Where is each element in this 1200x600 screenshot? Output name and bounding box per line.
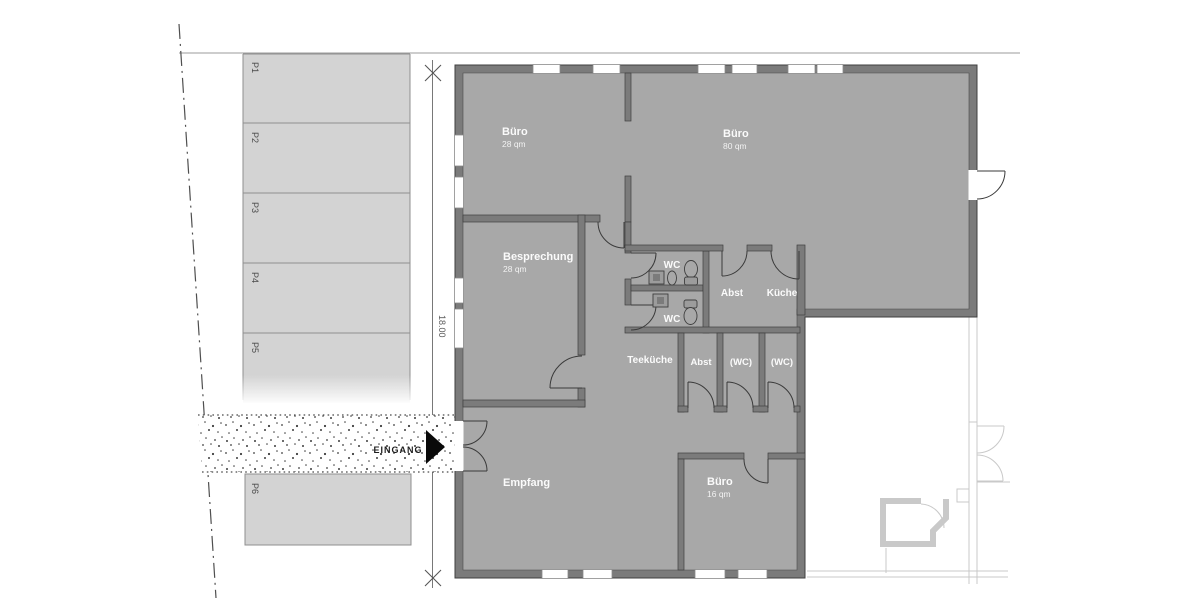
side-door-opening (969, 170, 978, 200)
label-abst-hall: Abst (690, 357, 712, 368)
label-buero-28-area: 28 qm (502, 139, 526, 149)
parking-label-p1: P1 (250, 62, 260, 73)
entrance-opening (455, 421, 464, 471)
entrance-walkway: EINGANG (198, 415, 458, 472)
parking-label-p5: P5 (250, 342, 260, 353)
label-buero-16: Büro (707, 476, 733, 488)
label-besprechung: Besprechung (503, 251, 573, 263)
label-wc-lower: WC (664, 314, 681, 325)
label-kueche: Küche (767, 288, 798, 299)
label-wc-hall-left: (WC) (730, 357, 752, 368)
neighbor-building-outline (807, 317, 1010, 584)
label-buero-28: Büro (502, 126, 528, 138)
floor-plan-svg: 18.00 P1 P2 P3 P4 P5 P6 EINGANG (0, 0, 1200, 600)
label-buero-80-area: 80 qm (723, 141, 747, 151)
parking-label-p2: P2 (250, 132, 260, 143)
property-line (179, 24, 216, 598)
entrance-label: EINGANG (373, 445, 422, 455)
parking-label-p6: P6 (250, 483, 260, 494)
parking-label-p3: P3 (250, 202, 260, 213)
dimension-label: 18.00 (437, 315, 447, 338)
building: Büro 28 qm Büro 80 qm Besprechung 28 qm … (455, 65, 1006, 579)
label-besprechung-area: 28 qm (503, 264, 527, 274)
label-empfang: Empfang (503, 477, 550, 489)
floor-plan-page: 18.00 P1 P2 P3 P4 P5 P6 EINGANG (0, 0, 1200, 600)
label-teekueche: Teeküche (627, 355, 673, 366)
label-wc-upper: WC (664, 260, 681, 271)
label-abst-upper: Abst (721, 288, 744, 299)
label-wc-hall-right: (WC) (771, 357, 793, 368)
parking-label-p4: P4 (250, 272, 260, 283)
parking-space-p6 (245, 474, 411, 545)
label-buero-80: Büro (723, 128, 749, 140)
label-buero-16-area: 16 qm (707, 489, 731, 499)
